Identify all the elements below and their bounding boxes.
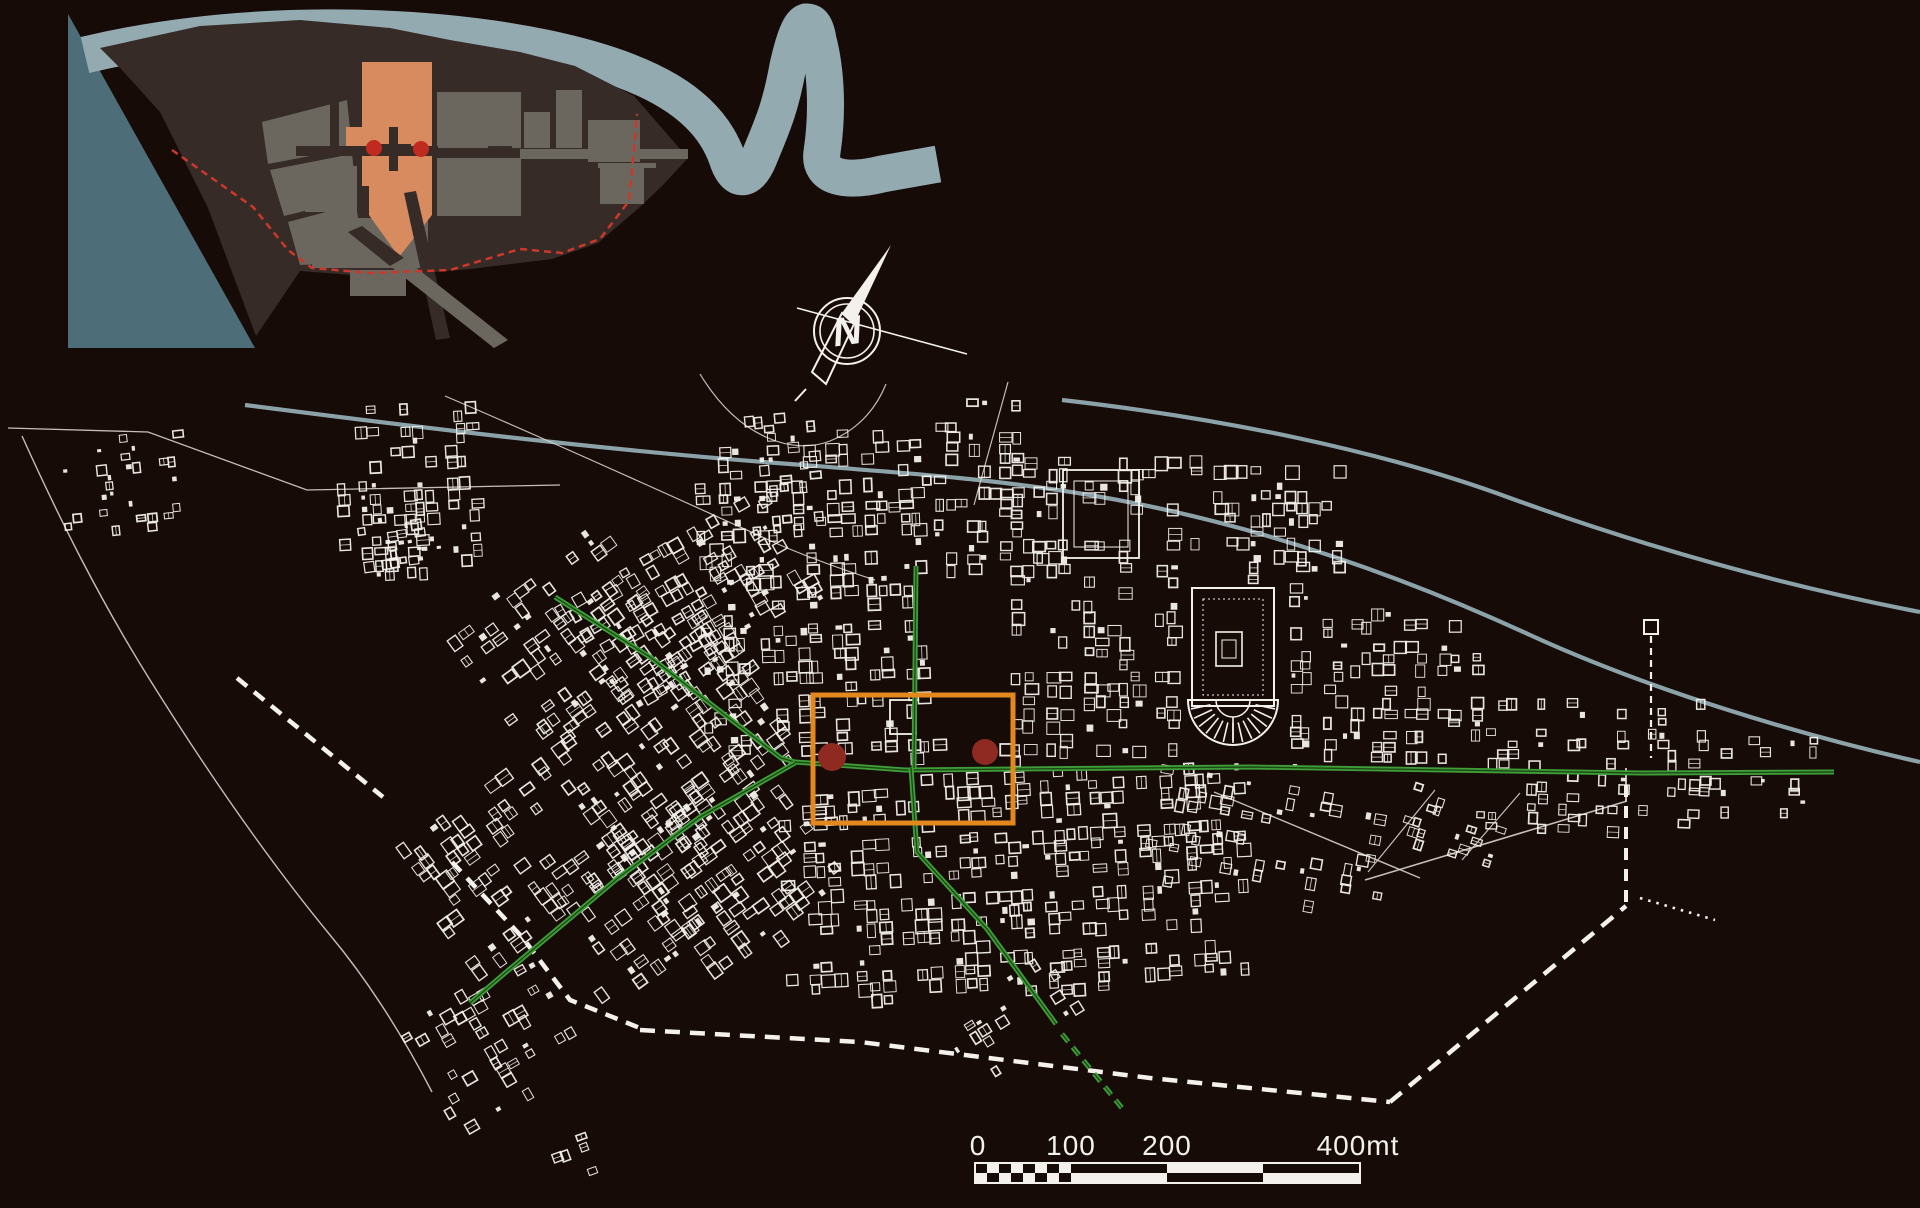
inset-urban-block	[350, 270, 406, 296]
scale-label-0: 0	[970, 1130, 987, 1161]
inset-urban-block	[487, 96, 513, 146]
inset-road	[330, 88, 339, 146]
scale-label-200: 200	[1142, 1130, 1192, 1161]
inset-road	[520, 149, 688, 159]
site-map: N0100200400mt	[0, 0, 1920, 1208]
inset-urban-block	[305, 166, 357, 212]
inset-site-dot	[366, 140, 382, 156]
inset-road	[598, 163, 656, 168]
focus-dot-east	[972, 739, 998, 765]
inset-urban-block	[437, 158, 521, 216]
map-canvas: N0100200400mt	[0, 0, 1920, 1208]
inset-urban-block	[600, 166, 644, 204]
inset-urban-block	[524, 112, 550, 148]
focus-dot-west	[818, 743, 846, 771]
inset-site-dot	[413, 141, 429, 157]
inset-urban-block	[556, 90, 582, 148]
scale-label-100: 100	[1046, 1130, 1096, 1161]
scale-label-400mt: 400mt	[1317, 1130, 1400, 1161]
